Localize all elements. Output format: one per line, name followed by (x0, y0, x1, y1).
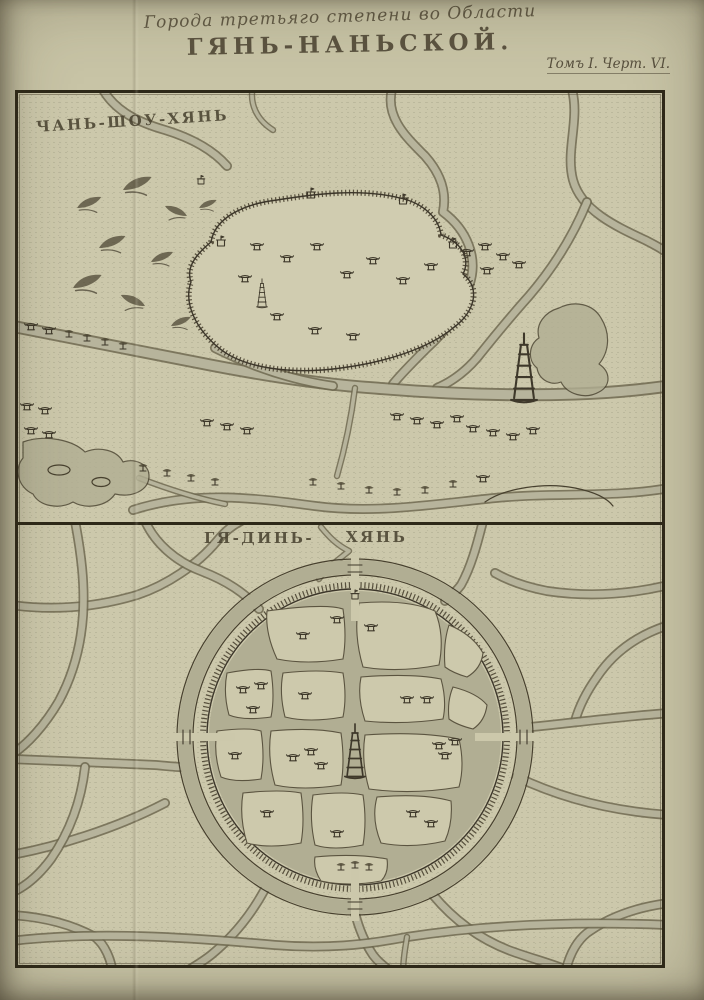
lake-with-islands (18, 438, 149, 506)
map-label-gia-dinh-left: ГЯ-ДИНЬ- (204, 529, 314, 547)
panel-divider-line (15, 522, 665, 525)
map-panel-chan-shou (15, 90, 665, 523)
page-title: ГЯНЬ-НАНЬСКОЙ. (110, 27, 590, 62)
engraved-atlas-page: Города третьяго степени во Области ГЯНЬ-… (0, 0, 704, 1000)
pond-east (530, 304, 608, 396)
gia-dinh-map-art (15, 525, 665, 968)
plate-number-label: Томъ I. Черт. VI. (547, 56, 670, 74)
chan-shou-map-art (15, 90, 665, 523)
map-panel-gia-dinh (15, 525, 665, 968)
map-label-gia-dinh-right: ХЯНЬ (346, 528, 407, 546)
